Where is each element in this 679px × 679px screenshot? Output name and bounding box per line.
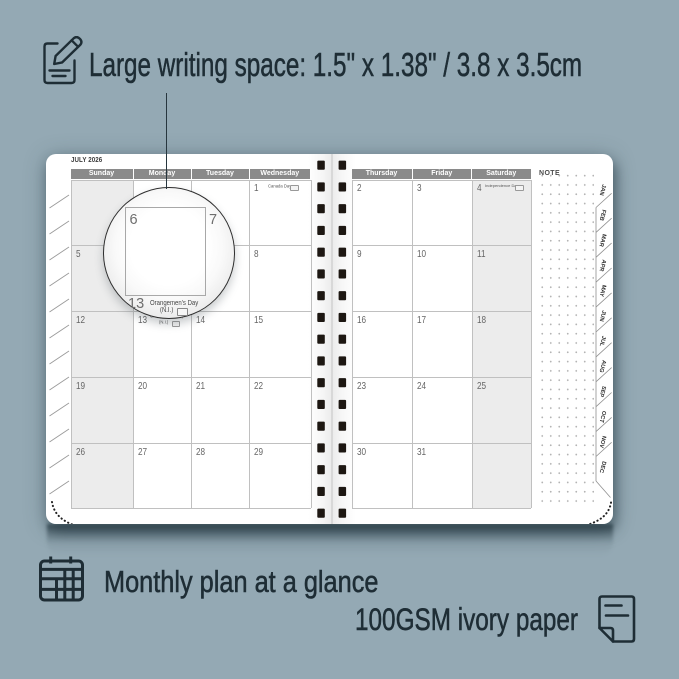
svg-text:JUN: JUN xyxy=(598,309,607,322)
svg-text:JAN: JAN xyxy=(598,183,607,196)
svg-text:SEP: SEP xyxy=(598,385,607,398)
svg-text:JUL: JUL xyxy=(598,335,607,347)
svg-text:OCT: OCT xyxy=(598,410,607,424)
svg-text:MAR: MAR xyxy=(598,233,607,247)
svg-text:DEC: DEC xyxy=(598,460,607,473)
svg-text:NOV: NOV xyxy=(598,435,607,449)
svg-text:MAY: MAY xyxy=(598,284,607,297)
svg-text:FEB: FEB xyxy=(598,209,607,222)
svg-text:AUG: AUG xyxy=(597,359,606,373)
svg-text:APR: APR xyxy=(598,259,607,272)
